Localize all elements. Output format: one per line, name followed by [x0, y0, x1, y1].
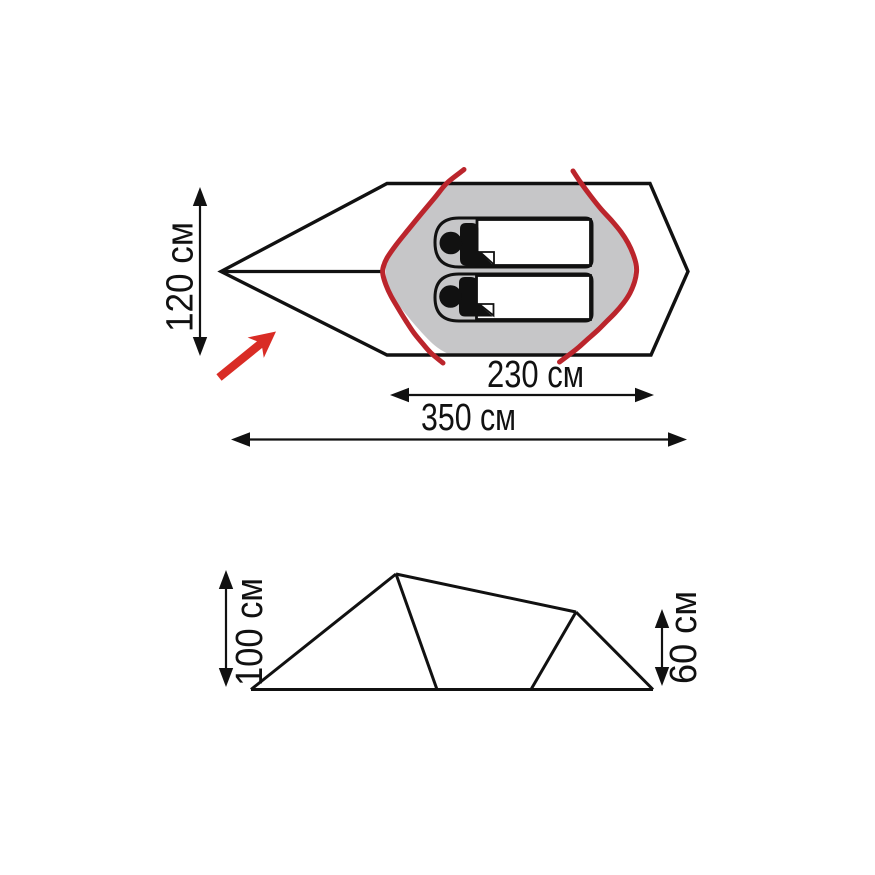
svg-text:100 см: 100 см [229, 578, 271, 686]
svg-text:120 см: 120 см [160, 222, 202, 332]
svg-text:350 см: 350 см [421, 397, 516, 439]
svg-text:230 см: 230 см [487, 354, 584, 396]
svg-text:60 см: 60 см [663, 591, 705, 684]
